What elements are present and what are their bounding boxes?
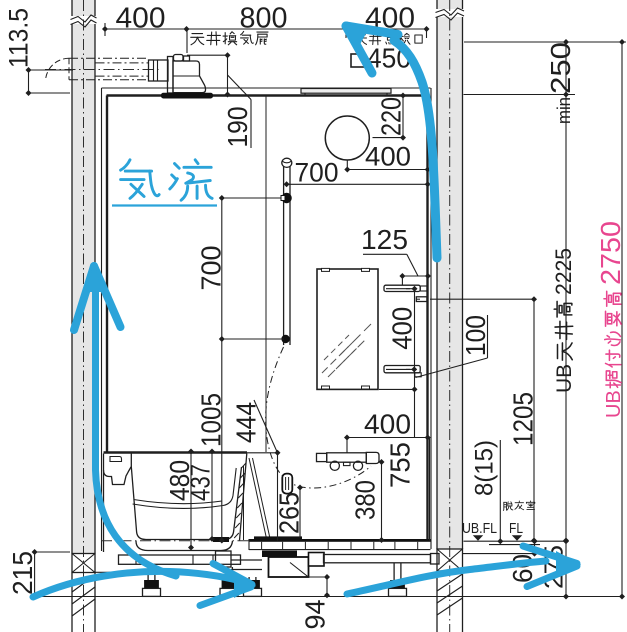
svg-text:2225: 2225 — [551, 248, 576, 295]
svg-text:400: 400 — [364, 409, 411, 440]
svg-text:380: 380 — [350, 480, 381, 520]
svg-text:700: 700 — [295, 158, 339, 188]
svg-text:113.5: 113.5 — [4, 8, 34, 68]
svg-text:400: 400 — [365, 142, 411, 172]
svg-text:400: 400 — [116, 3, 166, 35]
svg-text:437: 437 — [185, 464, 216, 501]
svg-text:400: 400 — [387, 307, 418, 350]
svg-text:2750: 2750 — [595, 221, 626, 285]
svg-text:1205: 1205 — [508, 392, 539, 446]
svg-text:100: 100 — [460, 315, 491, 356]
svg-text:700: 700 — [196, 246, 227, 291]
svg-text:125: 125 — [361, 224, 408, 255]
svg-text:250: 250 — [545, 42, 576, 94]
svg-text:min: min — [554, 97, 574, 124]
svg-text:FL: FL — [509, 520, 523, 537]
svg-text:215: 215 — [7, 551, 38, 595]
svg-text:444: 444 — [231, 402, 262, 443]
svg-text:8(15): 8(15) — [471, 440, 499, 496]
svg-text:755: 755 — [385, 442, 416, 488]
svg-text:UB: UB — [553, 364, 576, 393]
svg-text:UB: UB — [603, 390, 625, 418]
svg-text:1005: 1005 — [196, 393, 227, 447]
svg-text:265: 265 — [274, 492, 305, 534]
svg-text:60: 60 — [507, 554, 538, 583]
svg-text:94: 94 — [300, 600, 331, 630]
svg-text:220: 220 — [376, 97, 407, 136]
svg-text:800: 800 — [240, 3, 288, 35]
svg-text:UB.FL: UB.FL — [462, 520, 497, 537]
svg-text:190: 190 — [222, 107, 253, 148]
